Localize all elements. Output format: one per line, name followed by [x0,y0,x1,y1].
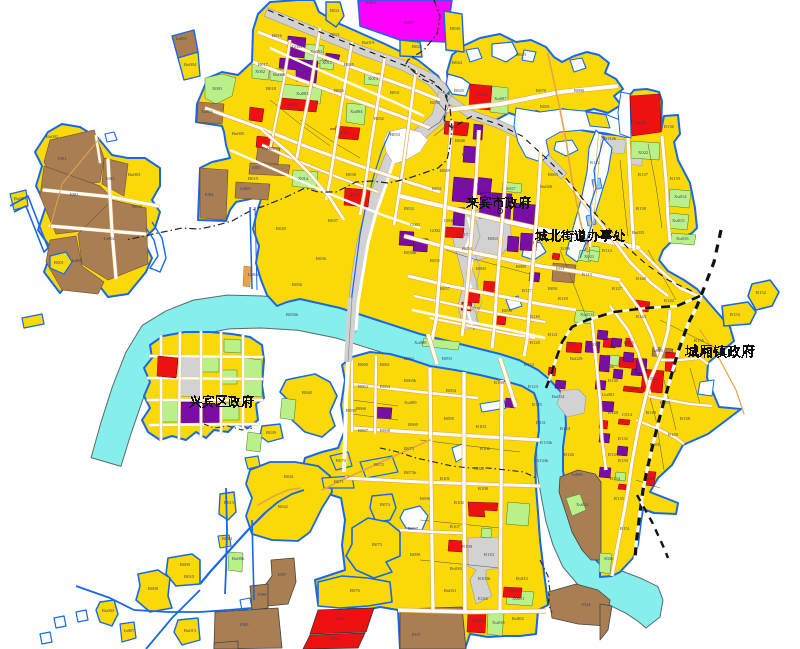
svg-text:R117: R117 [522,288,532,293]
svg-text:Xu007: Xu007 [494,96,507,101]
svg-text:R045: R045 [454,88,465,93]
svg-text:R112b: R112b [604,136,617,141]
svg-text:C001: C001 [288,102,299,107]
svg-text:R041: R041 [284,474,295,479]
svg-text:R073: R073 [404,446,415,451]
svg-text:R075: R075 [372,542,383,547]
svg-text:C002: C002 [340,130,351,135]
svg-text:Ru031: Ru031 [444,588,457,593]
svg-text:X021: X021 [584,254,595,259]
svg-text:R134b: R134b [536,458,549,463]
svg-text:Ru006: Ru006 [273,72,286,77]
svg-text:R101: R101 [440,476,451,481]
svg-text:R001: R001 [54,260,65,265]
svg-text:R106: R106 [480,446,491,451]
svg-text:G020: G020 [590,342,601,347]
svg-text:R159: R159 [668,432,679,437]
svg-text:I014: I014 [582,602,591,607]
svg-text:Iu003: Iu003 [652,348,663,353]
svg-text:X012: X012 [322,60,333,65]
svg-text:R137: R137 [638,172,649,177]
svg-text:B024: B024 [412,44,423,49]
svg-text:R093: R093 [442,356,453,361]
svg-text:R149: R149 [646,410,657,415]
svg-text:S024: S024 [610,344,620,349]
svg-text:G002: G002 [430,228,441,233]
svg-text:Ru005: Ru005 [232,131,245,136]
svg-text:Gu001: Gu001 [602,392,615,397]
svg-text:R112: R112 [590,160,600,165]
svg-text:Ru002: Ru002 [46,134,59,139]
svg-text:G010: G010 [456,182,467,187]
svg-text:R148: R148 [608,410,619,415]
svg-text:R133b: R133b [540,440,553,445]
svg-text:B021: B021 [330,8,341,13]
svg-text:R145: R145 [624,340,635,345]
svg-text:I002: I002 [70,192,79,197]
svg-text:R073b: R073b [404,470,417,475]
svg-text:R069: R069 [408,422,419,427]
svg-text:R142: R142 [664,298,675,303]
svg-text:R046: R046 [455,138,466,143]
svg-text:R103: R103 [476,424,487,429]
svg-text:B026: B026 [334,88,345,93]
svg-text:R140: R140 [636,276,647,281]
svg-text:A001: A001 [298,68,309,73]
svg-text:R146: R146 [604,364,615,369]
svg-text:I004: I004 [205,192,214,197]
svg-text:R056b: R056b [286,312,299,317]
svg-text:R071: R071 [334,479,345,484]
svg-text:B016: B016 [272,33,283,38]
svg-text:X002: X002 [255,69,266,74]
svg-text:X014: X014 [298,176,309,181]
svg-text:Ru035: Ru035 [632,230,645,235]
svg-text:R158: R158 [680,416,691,421]
svg-text:Iu004: Iu004 [202,109,213,114]
svg-text:R014: R014 [222,536,233,541]
svg-text:B030: B030 [450,26,461,31]
svg-text:Ru005: Ru005 [102,608,115,613]
svg-text:Xu014: Xu014 [674,194,687,199]
svg-text:Ru001: Ru001 [14,196,27,201]
svg-text:R143: R143 [636,314,647,319]
svg-text:R114: R114 [602,248,612,253]
svg-text:R102: R102 [454,500,465,505]
svg-text:Iu007: Iu007 [124,628,135,633]
svg-text:R090: R090 [502,308,513,313]
svg-text:R002: R002 [132,204,143,209]
svg-text:R097: R097 [408,526,419,531]
svg-text:R072: R072 [374,462,385,467]
svg-text:R065b: R065b [404,378,417,383]
svg-text:R042: R042 [278,504,289,509]
svg-text:R083: R083 [476,266,487,271]
svg-text:R065: R065 [548,172,559,177]
svg-text:G017: G017 [458,232,469,237]
svg-text:R054: R054 [462,246,473,251]
svg-text:I005: I005 [252,165,261,170]
svg-text:R068: R068 [380,428,391,433]
svg-text:I002: I002 [336,616,345,621]
svg-text:X001: X001 [212,86,223,91]
svg-text:Xu015: Xu015 [672,218,685,223]
svg-text:Xu004: Xu004 [350,109,363,114]
svg-text:R056: R056 [292,282,303,287]
svg-text:Iu006: Iu006 [572,472,583,477]
svg-text:Iu001: Iu001 [378,408,389,413]
svg-text:R096: R096 [420,496,431,501]
svg-text:I004: I004 [330,636,339,641]
svg-text:R008: R008 [148,586,159,591]
svg-text:Ru013: Ru013 [184,628,197,633]
svg-text:R109: R109 [462,544,473,549]
svg-text:R063: R063 [358,384,369,389]
svg-text:R134: R134 [610,476,621,481]
svg-text:Xu009: Xu009 [404,400,417,405]
svg-text:R040: R040 [302,390,313,395]
svg-text:R061: R061 [380,362,391,367]
svg-text:R036: R036 [316,256,327,261]
svg-text:R080: R080 [574,88,585,93]
svg-text:R133: R133 [608,452,619,457]
svg-text:R038: R038 [346,172,357,177]
svg-text:C012: C012 [566,342,577,347]
svg-text:Iu002: Iu002 [104,236,115,241]
svg-text:R123: R123 [528,384,539,389]
svg-text:R099: R099 [410,552,421,557]
svg-text:u005: u005 [646,476,656,481]
svg-text:G025: G025 [556,380,567,385]
svg-text:S026: S026 [604,556,614,561]
svg-text:R055: R055 [430,258,441,263]
svg-text:R153: R153 [730,312,741,317]
svg-text:R079: R079 [536,88,547,93]
svg-text:R066: R066 [356,406,367,411]
svg-text:C014: C014 [622,412,633,417]
svg-text:Cu002: Cu002 [476,92,489,97]
svg-text:R157: R157 [660,400,671,405]
svg-text:I009: I009 [240,622,249,627]
svg-text:C003: C003 [448,124,459,129]
svg-text:R124: R124 [560,426,571,431]
svg-text:B032: B032 [374,116,385,121]
svg-text:Xu012: Xu012 [576,502,589,507]
svg-text:R063: R063 [488,236,499,241]
svg-text:Xu011: Xu011 [512,596,525,601]
svg-text:R161: R161 [650,442,661,447]
svg-text:R043: R043 [516,52,527,57]
svg-text:X013: X013 [368,76,379,81]
svg-text:R139: R139 [670,176,681,181]
svg-text:R049: R049 [440,168,451,173]
svg-text:G011: G011 [477,182,488,187]
svg-text:C016: C016 [628,386,639,391]
svg-text:R107: R107 [450,524,461,529]
svg-text:R131: R131 [536,420,547,425]
svg-text:R094: R094 [446,388,457,393]
svg-text:R091: R091 [548,286,559,291]
svg-text:R047: R047 [462,152,473,157]
svg-text:R135: R135 [614,496,625,501]
svg-text:B031: B031 [390,90,401,95]
svg-text:R076: R076 [350,588,361,593]
svg-text:R110: R110 [484,552,494,557]
svg-text:R136: R136 [664,124,675,129]
svg-text:I001: I001 [58,156,67,161]
svg-text:R155: R155 [694,338,705,343]
svg-text:R044: R044 [452,60,463,65]
svg-text:I008: I008 [258,592,267,597]
svg-text:Rs033: Rs033 [516,576,528,581]
svg-text:R122: R122 [524,362,535,367]
svg-text:Iu003: Iu003 [176,36,187,41]
svg-text:R062: R062 [404,356,415,361]
svg-text:B025: B025 [344,62,355,67]
svg-text:R037: R037 [328,218,339,223]
svg-text:R033: R033 [430,100,441,105]
svg-text:R009: R009 [180,562,191,567]
svg-text:R081: R081 [540,104,551,109]
svg-text:R057: R057 [440,286,451,291]
svg-text:G015: G015 [516,208,527,213]
svg-text:Cu008: Cu008 [634,120,647,125]
svg-text:R013: R013 [224,500,235,505]
svg-text:R127: R127 [612,286,623,291]
svg-text:Xu010: Xu010 [492,620,505,625]
svg-text:R118: R118 [558,296,568,301]
svg-text:Xu002: Xu002 [310,49,323,54]
svg-text:R126: R126 [564,452,575,457]
svg-text:Ru006: Ru006 [232,556,245,561]
svg-text:B033: B033 [390,132,401,137]
svg-text:B017: B017 [258,62,269,67]
svg-text:X022: X022 [638,150,649,155]
svg-text:Cu003: Cu003 [262,146,275,151]
svg-text:Ru004: Ru004 [184,62,197,67]
svg-text:R039: R039 [266,430,277,435]
svg-text:E003: E003 [404,20,414,25]
svg-text:R116: R116 [530,314,540,319]
svg-text:C018: C018 [648,376,659,381]
svg-text:G013: G013 [524,240,535,245]
svg-text:C010: C010 [508,588,519,593]
svg-text:R113: R113 [582,272,592,277]
svg-text:u001: u001 [350,192,360,197]
svg-text:Ru034: Ru034 [552,394,565,399]
svg-text:I003: I003 [106,176,115,181]
svg-text:Iu005: Iu005 [240,186,251,191]
svg-text:C006: C006 [444,218,455,223]
svg-text:B019: B019 [248,176,259,181]
svg-text:E104: E104 [478,596,488,601]
svg-text:R051: R051 [432,186,443,191]
svg-text:Ru019: Ru019 [362,40,375,45]
svg-text:R103b: R103b [478,576,491,581]
svg-text:R132: R132 [618,436,629,441]
svg-text:E003: E003 [366,0,376,5]
svg-text:R064: R064 [380,384,391,389]
svg-text:Rs030: Rs030 [450,566,462,571]
svg-text:R095: R095 [444,416,455,421]
svg-text:R010: R010 [184,574,195,579]
svg-text:R121: R121 [548,332,559,337]
svg-text:Rs002: Rs002 [512,616,524,621]
svg-text:G003: G003 [292,44,303,49]
svg-text:R029: R029 [276,226,287,231]
svg-text:Xu008: Xu008 [414,340,427,345]
svg-text:R120: R120 [530,340,541,345]
svg-text:R125: R125 [532,402,543,407]
svg-text:Ru003: Ru003 [128,172,141,177]
svg-text:Iu001: Iu001 [72,258,83,263]
svg-text:R138: R138 [636,206,647,211]
svg-text:R152: R152 [756,290,767,295]
svg-text:R036b: R036b [404,250,417,255]
svg-text:R108: R108 [478,486,489,491]
svg-text:R130: R130 [608,378,619,383]
svg-text:X016: X016 [560,246,571,251]
svg-text:Xu016: Xu016 [676,236,689,241]
svg-text:I015: I015 [412,632,421,637]
svg-text:N020: N020 [474,466,485,471]
svg-text:I007: I007 [278,572,287,577]
svg-text:Ru026: Ru026 [540,184,553,189]
svg-text:Iu00x: Iu00x [248,272,259,277]
svg-text:R089: R089 [516,264,527,269]
svg-text:G001: G001 [410,222,421,227]
svg-text:R059: R059 [346,408,357,413]
svg-text:R100: R100 [494,380,505,385]
svg-text:R074: R074 [380,502,391,507]
svg-text:Xu013: Xu013 [580,312,593,317]
svg-text:R070: R070 [336,458,347,463]
svg-text:R151: R151 [620,526,631,531]
svg-text:Ru029: Ru029 [570,356,583,361]
svg-text:R052: R052 [404,206,415,211]
svg-text:R150: R150 [618,458,629,463]
svg-text:R060: R060 [358,362,369,367]
svg-text:R092: R092 [470,306,481,311]
svg-text:B021: B021 [330,32,341,37]
svg-text:S017: S017 [506,186,516,191]
svg-text:R067: R067 [358,428,369,433]
svg-text:B018: B018 [266,86,277,91]
svg-text:Xu003: Xu003 [296,91,309,96]
svg-text:Cu002: Cu002 [472,618,485,623]
svg-text:I013: I013 [556,266,565,271]
